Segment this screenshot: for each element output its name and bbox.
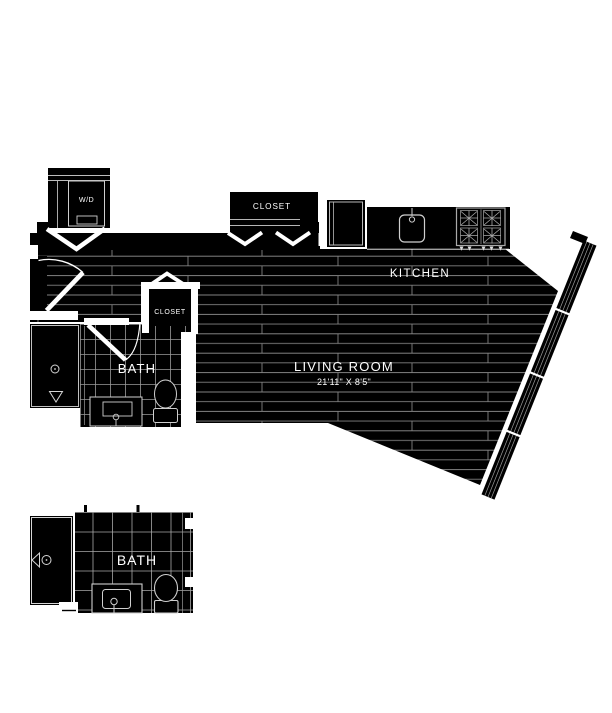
shower-icon (30, 516, 73, 605)
bath-detail: BATH (30, 505, 193, 615)
vanity-sink-icon (92, 584, 142, 613)
shower-icon (30, 324, 80, 408)
kitchen-label: KITCHEN (390, 268, 450, 280)
closet-hall-label: CLOSET (154, 309, 186, 316)
toilet-icon (154, 380, 178, 423)
bath-detail-label: BATH (117, 552, 157, 568)
toilet-icon (155, 575, 179, 614)
laundry-label: W/D (79, 195, 94, 204)
floor-plan: W/D CLOSET (0, 0, 612, 713)
living-room-dimensions: 21'11" X 8'5" (317, 377, 371, 387)
vanity-sink-icon (90, 397, 142, 426)
closet-top-label: CLOSET (253, 202, 291, 211)
refrigerator-icon (327, 200, 365, 247)
bath-label: BATH (118, 361, 157, 376)
floor-plan-drawing: W/D CLOSET (0, 0, 612, 713)
living-room-label: LIVING ROOM (294, 359, 394, 374)
